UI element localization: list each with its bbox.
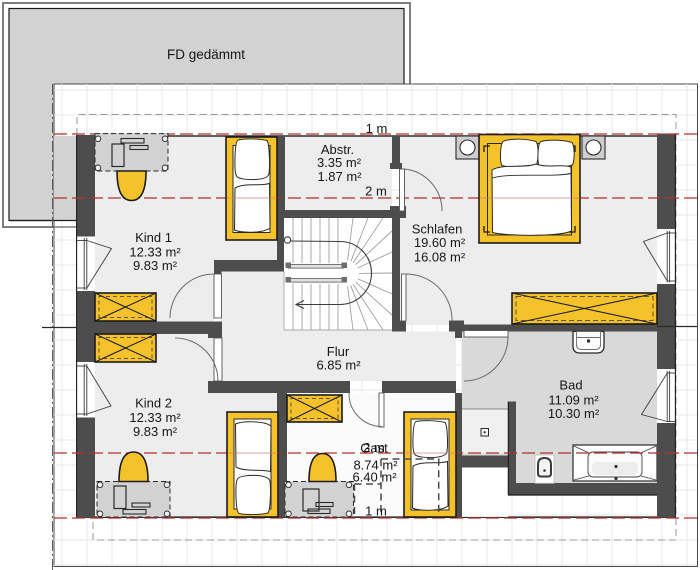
svg-text:1.87 m²: 1.87 m² <box>317 169 362 184</box>
svg-text:Kind 1: Kind 1 <box>135 230 172 245</box>
svg-text:9.83 m²: 9.83 m² <box>133 424 178 439</box>
svg-text:9.83 m²: 9.83 m² <box>133 258 178 273</box>
svg-text:Kind 2: Kind 2 <box>135 396 172 411</box>
svg-text:3.35 m²: 3.35 m² <box>317 155 362 170</box>
svg-text:16.08 m²: 16.08 m² <box>414 250 466 265</box>
svg-text:6.40 m²: 6.40 m² <box>352 470 397 485</box>
svg-text:10.30 m²: 10.30 m² <box>548 406 600 421</box>
svg-text:6.85 m²: 6.85 m² <box>316 358 361 373</box>
svg-text:Gast: Gast <box>360 441 388 456</box>
svg-text:2 m: 2 m <box>365 184 387 199</box>
svg-text:12.33 m²: 12.33 m² <box>129 410 181 425</box>
svg-text:1 m: 1 m <box>366 121 388 136</box>
svg-text:19.60 m²: 19.60 m² <box>414 235 466 250</box>
svg-text:FD gedämmt: FD gedämmt <box>167 47 245 62</box>
svg-text:Bad: Bad <box>559 378 582 393</box>
svg-text:1 m: 1 m <box>365 504 387 519</box>
